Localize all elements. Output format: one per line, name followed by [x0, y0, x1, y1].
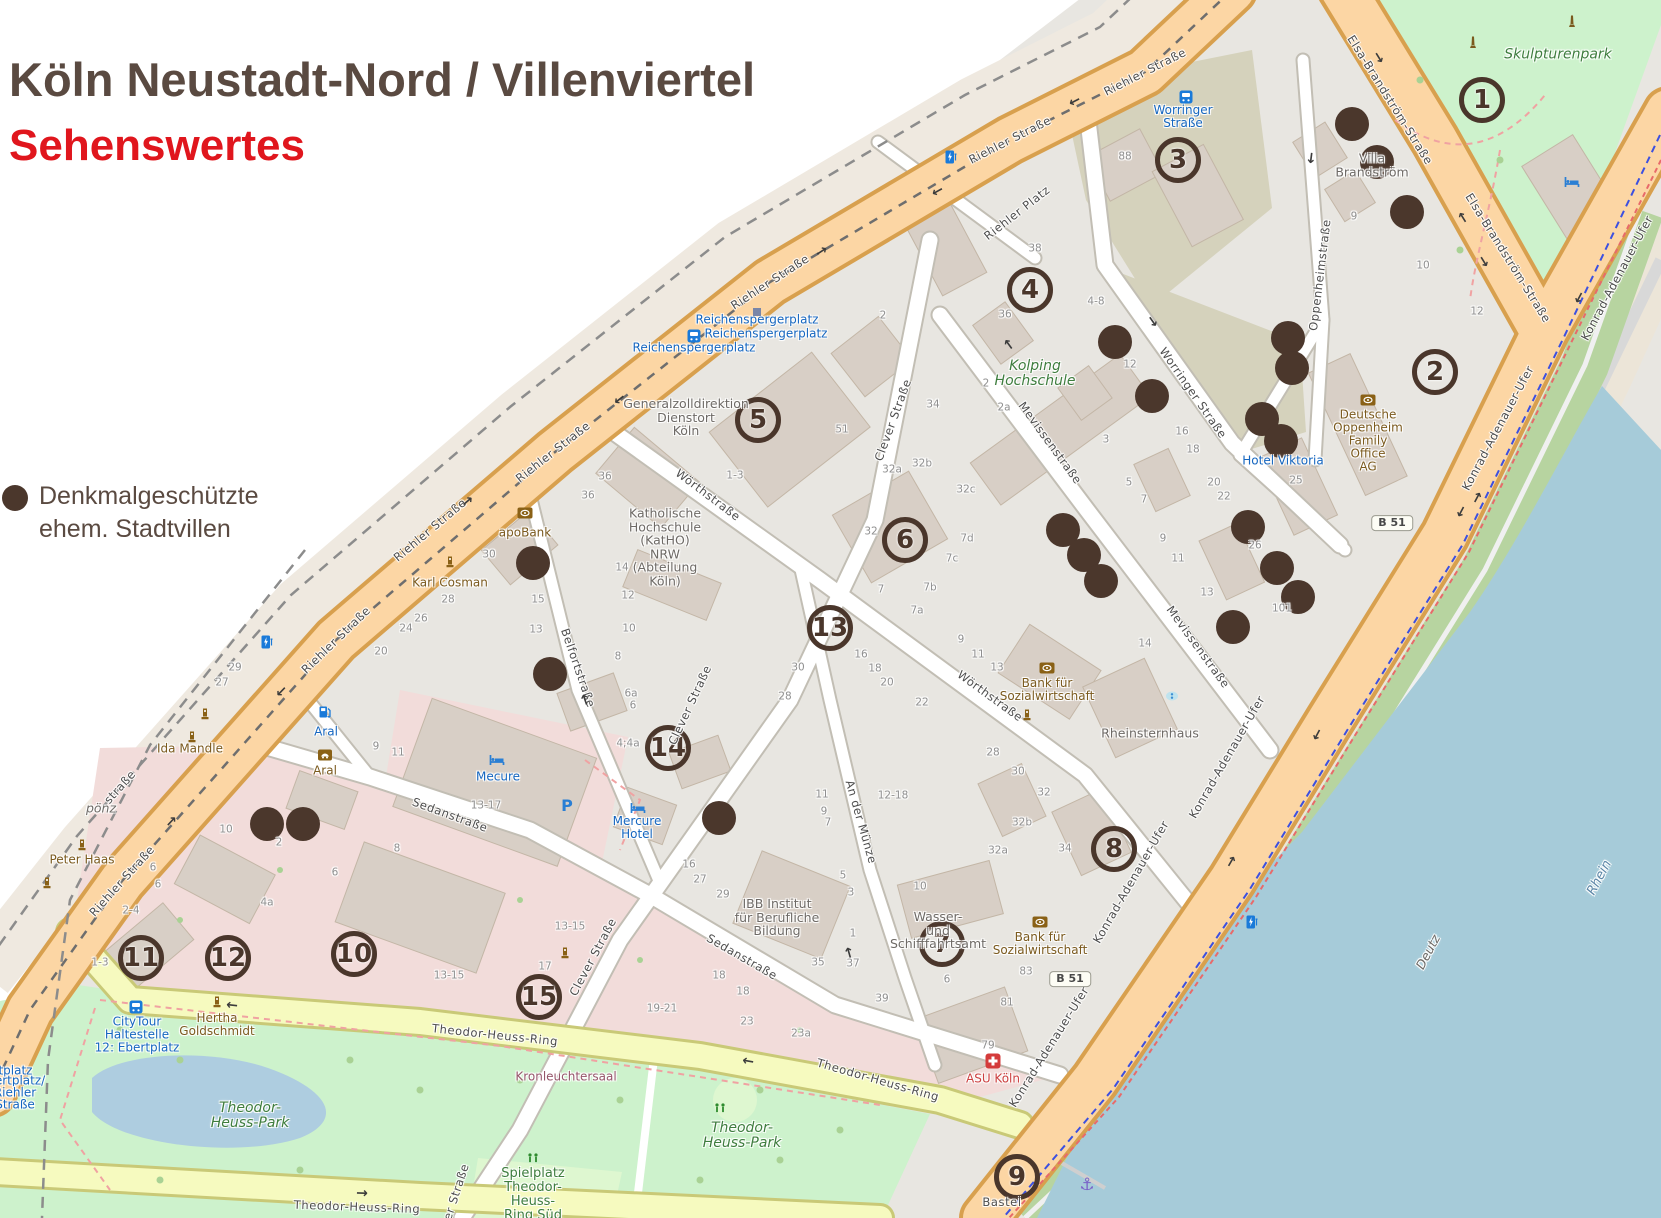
- street-label: Theodor-Heuss-Ring: [815, 1057, 940, 1104]
- house-number: 13-15: [434, 970, 465, 981]
- oneway-arrow: →: [1473, 253, 1492, 271]
- house-number: 18: [712, 970, 725, 981]
- ev-icon: [1247, 916, 1260, 929]
- bank-icon: [1361, 395, 1376, 406]
- house-number: 36: [581, 490, 594, 501]
- street-label: Mevissenstraße: [1016, 400, 1084, 487]
- house-number: 9: [958, 634, 965, 645]
- house-number: 29: [228, 662, 241, 673]
- house-number: 19-21: [647, 1003, 678, 1014]
- villa-dot: [1275, 351, 1309, 385]
- house-number: 2a: [997, 402, 1010, 413]
- memorial-icon: [77, 839, 87, 852]
- street-label: Konrad-Adenauer-Ufer: [1460, 364, 1536, 493]
- oneway-arrow: →: [162, 813, 181, 832]
- monument-icon: [1568, 15, 1577, 29]
- poi-label: apoBank: [499, 527, 551, 540]
- street-label: Bastei: [982, 1196, 1021, 1208]
- villa-dot: [702, 801, 736, 835]
- house-number: 11: [391, 747, 404, 758]
- playground-icon: [713, 1103, 727, 1114]
- house-number: 6: [155, 879, 162, 890]
- house-number: 5: [840, 870, 847, 881]
- area-label: SpielplatzTheodor-Heuss-Ring Süd: [501, 1167, 564, 1218]
- house-number: 28: [778, 691, 791, 702]
- house-number: 34: [926, 399, 939, 410]
- bank-icon: [518, 508, 533, 519]
- street-label: Riehler Straße: [967, 114, 1053, 166]
- house-number: 7: [878, 584, 885, 595]
- house-number: 20: [880, 677, 893, 688]
- house-number: 6: [150, 862, 157, 873]
- house-number: 6a: [624, 688, 637, 699]
- map-marker-1: 1: [1459, 77, 1505, 123]
- map-annotations: 123456789101112131415Riehler StraßeRiehl…: [0, 0, 1661, 1218]
- villa-dot: [1098, 325, 1132, 359]
- house-number: 12: [621, 590, 634, 601]
- villa-dot: [1084, 564, 1118, 598]
- poi-label: Bank fürSozialwirtschaft: [993, 931, 1088, 957]
- house-number: 88: [1118, 151, 1131, 162]
- house-number: 1-3: [91, 957, 108, 968]
- map-marker-15: 15: [516, 974, 562, 1020]
- oneway-arrow: →: [1223, 853, 1242, 871]
- poi-label: Kronleuchtersaal: [515, 1071, 616, 1084]
- oneway-arrow: →: [356, 1186, 368, 1202]
- area-label: pönz: [86, 801, 116, 815]
- memorial-icon: [560, 947, 570, 960]
- oneway-arrow: →: [1142, 313, 1161, 331]
- house-number: 16: [682, 859, 695, 870]
- house-number: 30: [482, 549, 495, 560]
- bank-icon: [1040, 663, 1055, 674]
- house-number: 83: [1019, 966, 1032, 977]
- oneway-arrow: ←: [929, 183, 947, 202]
- oneway-arrow: ←: [741, 1054, 755, 1071]
- house-number: 3: [1103, 434, 1110, 445]
- oneway-arrow: ←: [1304, 151, 1320, 164]
- transit-label: Straße: [0, 1099, 35, 1112]
- ev-icon: [262, 636, 275, 649]
- street-label: Clever Straße: [666, 663, 714, 746]
- poi-label: ASU Köln: [966, 1073, 1020, 1086]
- house-number: 28: [441, 594, 454, 605]
- house-number: 79: [981, 1040, 994, 1051]
- house-number: 9: [373, 741, 380, 752]
- area-label: VillaBrandström: [1335, 152, 1408, 179]
- oneway-arrow: ←: [225, 998, 238, 1014]
- street-label: Riehler Straße: [1102, 46, 1188, 98]
- area-label: Deutz: [1413, 933, 1442, 972]
- map-marker-4: 4: [1007, 267, 1053, 313]
- street-label: Elsa-Brandström-Straße: [1345, 33, 1435, 167]
- house-number: 10: [622, 623, 635, 634]
- memorial-icon: [445, 556, 455, 569]
- house-number: 6: [332, 867, 339, 878]
- area-label: KolpingHochschule: [995, 359, 1076, 389]
- house-number: 11: [815, 789, 828, 800]
- area-label: Skulpturenpark: [1504, 47, 1612, 62]
- route-badge-b51: B 51: [1371, 515, 1413, 531]
- poi-label: HerthaGoldschmidt: [179, 1012, 254, 1038]
- playground-icon: [526, 1153, 540, 1164]
- house-number: 38: [1028, 243, 1041, 254]
- house-number: 1-3: [726, 470, 743, 481]
- house-number: 16: [854, 649, 867, 660]
- street-label: Riehler Platz: [982, 184, 1052, 243]
- area-label: Theodor-Heuss-Park: [211, 1101, 290, 1131]
- villa-dot: [286, 807, 320, 841]
- house-number: 32b: [1012, 817, 1032, 828]
- memorial-icon: [212, 996, 222, 1009]
- fountain-icon: [1166, 691, 1179, 701]
- house-number: 12: [1123, 359, 1136, 370]
- house-number: 22: [915, 697, 928, 708]
- map-marker-2: 2: [1412, 349, 1458, 395]
- house-number: 4a: [260, 897, 273, 908]
- house-number: 27: [215, 677, 228, 688]
- house-number: 20: [1207, 477, 1220, 488]
- house-number: 13: [529, 624, 542, 635]
- bed-icon: [1564, 176, 1580, 188]
- villa-dot: [1271, 321, 1305, 355]
- house-number: 9: [1351, 211, 1358, 222]
- oneway-arrow: ←: [1066, 93, 1083, 112]
- house-number: 23: [740, 1016, 753, 1027]
- area-label: Rheinsternhaus: [1101, 726, 1199, 740]
- monument-icon: [1469, 36, 1478, 50]
- legend-villa-dot-symbol: [2, 485, 28, 511]
- house-number: 7c: [946, 553, 958, 564]
- transit-label: MercureHotel: [613, 815, 662, 841]
- house-number: 13: [1200, 587, 1213, 598]
- route-badge-b51: B 51: [1049, 971, 1091, 987]
- house-number: 10: [219, 824, 232, 835]
- house-number: 4-8: [1087, 296, 1104, 307]
- house-number: 24: [399, 623, 412, 634]
- house-number: 6: [630, 700, 637, 711]
- house-number: 29: [716, 889, 729, 900]
- street-label: Clever Straße: [433, 1162, 471, 1218]
- map-marker-12: 12: [205, 935, 251, 981]
- house-number: 18: [868, 663, 881, 674]
- bank-icon: [1033, 917, 1048, 928]
- house-number: 13-17: [471, 800, 502, 811]
- house-number: 10: [1416, 260, 1429, 271]
- bus-icon: [130, 1001, 143, 1014]
- bed-icon: [630, 802, 646, 814]
- area-label: GeneralzolldirektionDienstortKöln: [623, 397, 749, 438]
- area-label: Theodor-Heuss-Park: [703, 1121, 782, 1151]
- house-number: 32: [864, 526, 877, 537]
- house-number: 51: [835, 424, 848, 435]
- map-marker-6: 6: [882, 517, 928, 563]
- house-number: 12-18: [878, 790, 909, 801]
- memorial-icon: [1022, 709, 1032, 722]
- house-number: 32a: [882, 464, 902, 475]
- street-label: An der Münze: [843, 779, 879, 865]
- street-label: Konrad-Adenauer-Ufer: [1579, 214, 1655, 343]
- house-number: 28: [986, 747, 999, 758]
- bed-icon: [489, 754, 505, 766]
- oneway-arrow: ←: [998, 336, 1017, 354]
- map-marker-3: 3: [1155, 137, 1201, 183]
- house-number: 32c: [956, 484, 975, 495]
- house-number: 2-4: [122, 905, 139, 916]
- house-number: 13: [990, 662, 1003, 673]
- house-number: 14: [615, 562, 628, 573]
- clinic-icon: [986, 1054, 1001, 1069]
- house-number: 7a: [910, 605, 923, 616]
- house-number: 2: [276, 837, 283, 848]
- legend-label: Denkmalgeschützte ehem. Stadtvillen: [39, 480, 259, 545]
- poi-label: Peter Haas: [49, 854, 114, 867]
- house-number: 34: [1058, 843, 1071, 854]
- house-number: 12: [1470, 306, 1483, 317]
- poi-label: Aral: [313, 765, 337, 778]
- house-number: 11: [1171, 553, 1184, 564]
- house-number: 39: [875, 993, 888, 1004]
- transit-label: WorringerStraße: [1153, 104, 1212, 130]
- oneway-arrow: ←: [1309, 726, 1328, 743]
- villa-dot: [1335, 107, 1369, 141]
- street-label: Konrad-Adenauer-Ufer: [1007, 985, 1091, 1110]
- transit-label: CityTourHaltestelle12: Ebertplatz: [95, 1016, 180, 1055]
- bus-icon: [1180, 91, 1193, 104]
- oneway-arrow: ←: [272, 683, 291, 702]
- house-number: 35: [811, 957, 824, 968]
- house-number: 7: [825, 817, 832, 828]
- house-number: 16: [1175, 426, 1188, 437]
- house-number: 10: [913, 881, 926, 892]
- area-label: Rhein: [1585, 858, 1615, 897]
- map-marker-8: 8: [1091, 826, 1137, 872]
- villa-dot: [1135, 379, 1169, 413]
- bus-icon: [688, 330, 701, 343]
- area-label: KatholischeHochschule(KatHO)NRW(Abteilun…: [629, 507, 701, 588]
- legend: Denkmalgeschützte ehem. Stadtvillen: [2, 480, 259, 545]
- house-number: 14: [1138, 638, 1151, 649]
- poi-label: Bank fürSozialwirtschaft: [1000, 677, 1095, 703]
- street-label: Konrad-Adenauer-Ufer: [1187, 694, 1267, 821]
- transit-label: Hotel Viktoria: [1242, 455, 1324, 468]
- page-subtitle: Sehenswertes: [9, 121, 755, 171]
- poi-label: DeutscheOppenheimFamilyOfficeAG: [1333, 409, 1403, 474]
- house-number: 36: [998, 309, 1011, 320]
- house-number: 4;4a: [616, 738, 639, 749]
- house-number: 7d: [960, 533, 973, 544]
- map-marker-11: 11: [118, 935, 164, 981]
- memorial-icon: [187, 731, 197, 744]
- station-square-icon: [753, 308, 761, 316]
- memorial-icon: [200, 708, 210, 721]
- villa-dot: [516, 546, 550, 580]
- oneway-arrow: ←: [1452, 209, 1471, 227]
- house-number: 8: [615, 651, 622, 662]
- house-number: 25: [1289, 475, 1302, 486]
- house-number: 23a: [791, 1028, 811, 1039]
- house-number: 20: [374, 646, 387, 657]
- title-block: Köln Neustadt-Nord / Villenviertel Sehen…: [9, 52, 755, 171]
- transit-label: Mecure: [476, 771, 520, 784]
- house-number: 2: [880, 310, 887, 321]
- map-marker-13: 13: [807, 605, 853, 651]
- map-canvas[interactable]: 123456789101112131415Riehler StraßeRiehl…: [0, 0, 1661, 1218]
- fuel-icon: [319, 706, 332, 719]
- house-number: 32a: [988, 845, 1008, 856]
- area-label: Wasser-undSchifffahrtsamt: [890, 910, 986, 951]
- house-number: 22: [1217, 491, 1230, 502]
- house-number: 18: [736, 986, 749, 997]
- street-label: Oppenheimstraße: [1307, 218, 1333, 331]
- house-number: 7b: [923, 582, 936, 593]
- villa-dot: [1260, 551, 1294, 585]
- oneway-arrow: ←: [1453, 503, 1472, 520]
- oneway-arrow: ←: [1571, 289, 1590, 306]
- house-number: 27: [693, 874, 706, 885]
- street-label: Theodor-Heuss-Ring: [431, 1022, 558, 1048]
- oneway-arrow: →: [813, 242, 831, 261]
- street-label: Riehler Straße: [514, 419, 593, 485]
- street-label: Riehler Straße: [391, 496, 468, 564]
- villa-dot: [533, 657, 567, 691]
- house-number: 11: [971, 649, 984, 660]
- house-number: 81: [1000, 997, 1013, 1008]
- house-number: 26: [1248, 540, 1261, 551]
- ev-icon: [946, 151, 959, 164]
- house-number: 3: [848, 887, 855, 898]
- house-number: 15: [531, 594, 544, 605]
- villa-dot: [1216, 610, 1250, 644]
- house-number: 37: [846, 958, 859, 969]
- map-marker-10: 10: [331, 931, 377, 977]
- house-number: 30: [791, 662, 804, 673]
- house-number: 6: [944, 974, 951, 985]
- house-number: 101: [1272, 603, 1292, 614]
- street-label: Riehler Straße: [729, 252, 812, 312]
- house-number: 30: [1011, 766, 1024, 777]
- oneway-arrow: →: [1469, 489, 1488, 506]
- house-number: 18: [1186, 444, 1199, 455]
- transit-label: Reichenspergerplatz: [633, 342, 756, 355]
- house-number: 32: [1037, 787, 1050, 798]
- transit-label: Reichenspergerplatz: [705, 328, 828, 341]
- page-title: Köln Neustadt-Nord / Villenviertel: [9, 52, 755, 107]
- poi-label: Ida Mandle: [157, 743, 223, 756]
- house-number: 32b: [912, 458, 932, 469]
- house-number: 7: [1141, 494, 1148, 505]
- villa-dot: [1390, 195, 1424, 229]
- house-number: 2: [983, 378, 990, 389]
- street-label: Clever Straße: [872, 377, 913, 462]
- house-number: 9: [1160, 533, 1167, 544]
- house-number: 13-15: [555, 921, 586, 932]
- house-number: 26: [414, 613, 427, 624]
- house-number: 5: [1126, 477, 1133, 488]
- poi-label: Karl Cosman: [412, 577, 488, 590]
- area-label: IBB Institutfür BeruflicheBildung: [735, 897, 820, 938]
- street-label: Riehler Straße: [299, 604, 373, 676]
- carwash-icon: [318, 750, 332, 761]
- transit-label: Aral: [314, 726, 338, 739]
- memorial-icon: [42, 877, 52, 890]
- map-marker-9: 9: [994, 1154, 1040, 1200]
- house-number: 1: [850, 928, 857, 939]
- house-number: 17: [538, 961, 551, 972]
- house-number: 8: [394, 843, 401, 854]
- house-number: 36: [598, 471, 611, 482]
